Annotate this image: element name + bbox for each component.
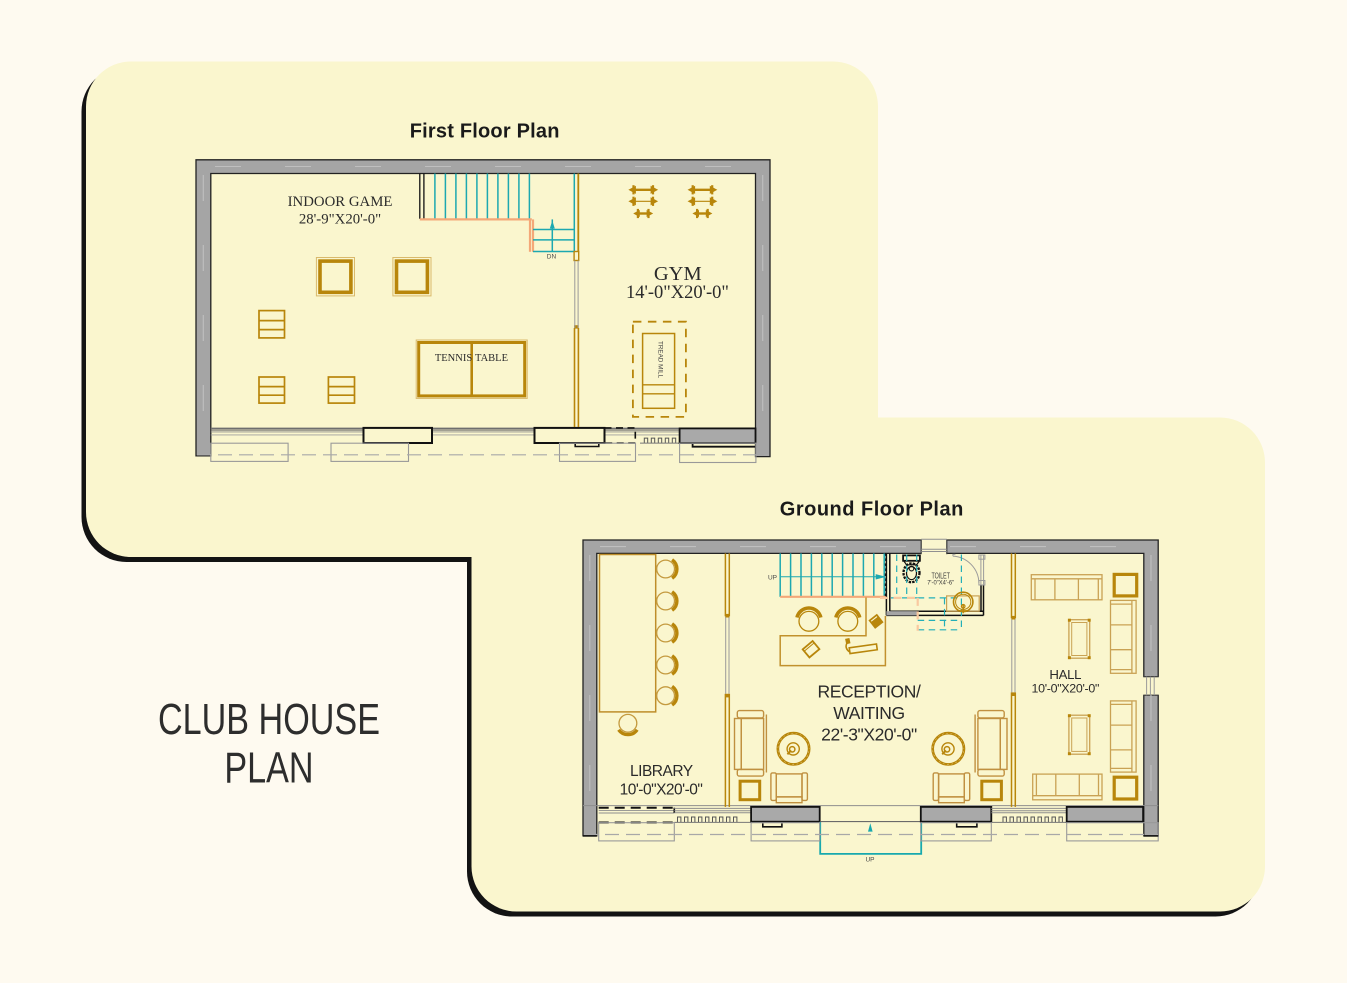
svg-text:TABLE: TABLE [475,353,508,364]
svg-text:LIBRARY: LIBRARY [630,763,693,780]
svg-text:28'-9"X20'-0": 28'-9"X20'-0" [299,212,381,228]
svg-text:TREAD MILL: TREAD MILL [657,341,664,379]
svg-text:22'-3"X20'-0": 22'-3"X20'-0" [821,725,917,745]
svg-text:UP: UP [768,575,777,582]
svg-text:UP: UP [865,857,874,864]
svg-text:10'-0"X20'-0": 10'-0"X20'-0" [620,782,703,799]
svg-text:RECEPTION/: RECEPTION/ [818,682,921,702]
svg-text:WAITING: WAITING [833,703,904,723]
svg-text:10'-0"X20'-0": 10'-0"X20'-0" [1032,681,1100,695]
svg-text:First Floor Plan: First Floor Plan [410,121,560,143]
svg-text:INDOOR GAME: INDOOR GAME [288,194,393,210]
svg-text:TENNIS: TENNIS [435,353,472,364]
svg-text:PLAN: PLAN [224,745,313,793]
svg-text:TOILET: TOILET [931,571,950,580]
svg-text:CLUB HOUSE: CLUB HOUSE [158,696,380,744]
svg-text:14'-0"X20'-0": 14'-0"X20'-0" [626,283,729,303]
svg-text:Ground Floor Plan: Ground Floor Plan [780,498,964,520]
svg-text:HALL: HALL [1049,667,1081,682]
svg-text:DN: DN [547,254,557,261]
svg-text:GYM: GYM [654,263,702,285]
svg-text:7'-0"X4'-6": 7'-0"X4'-6" [927,580,954,586]
